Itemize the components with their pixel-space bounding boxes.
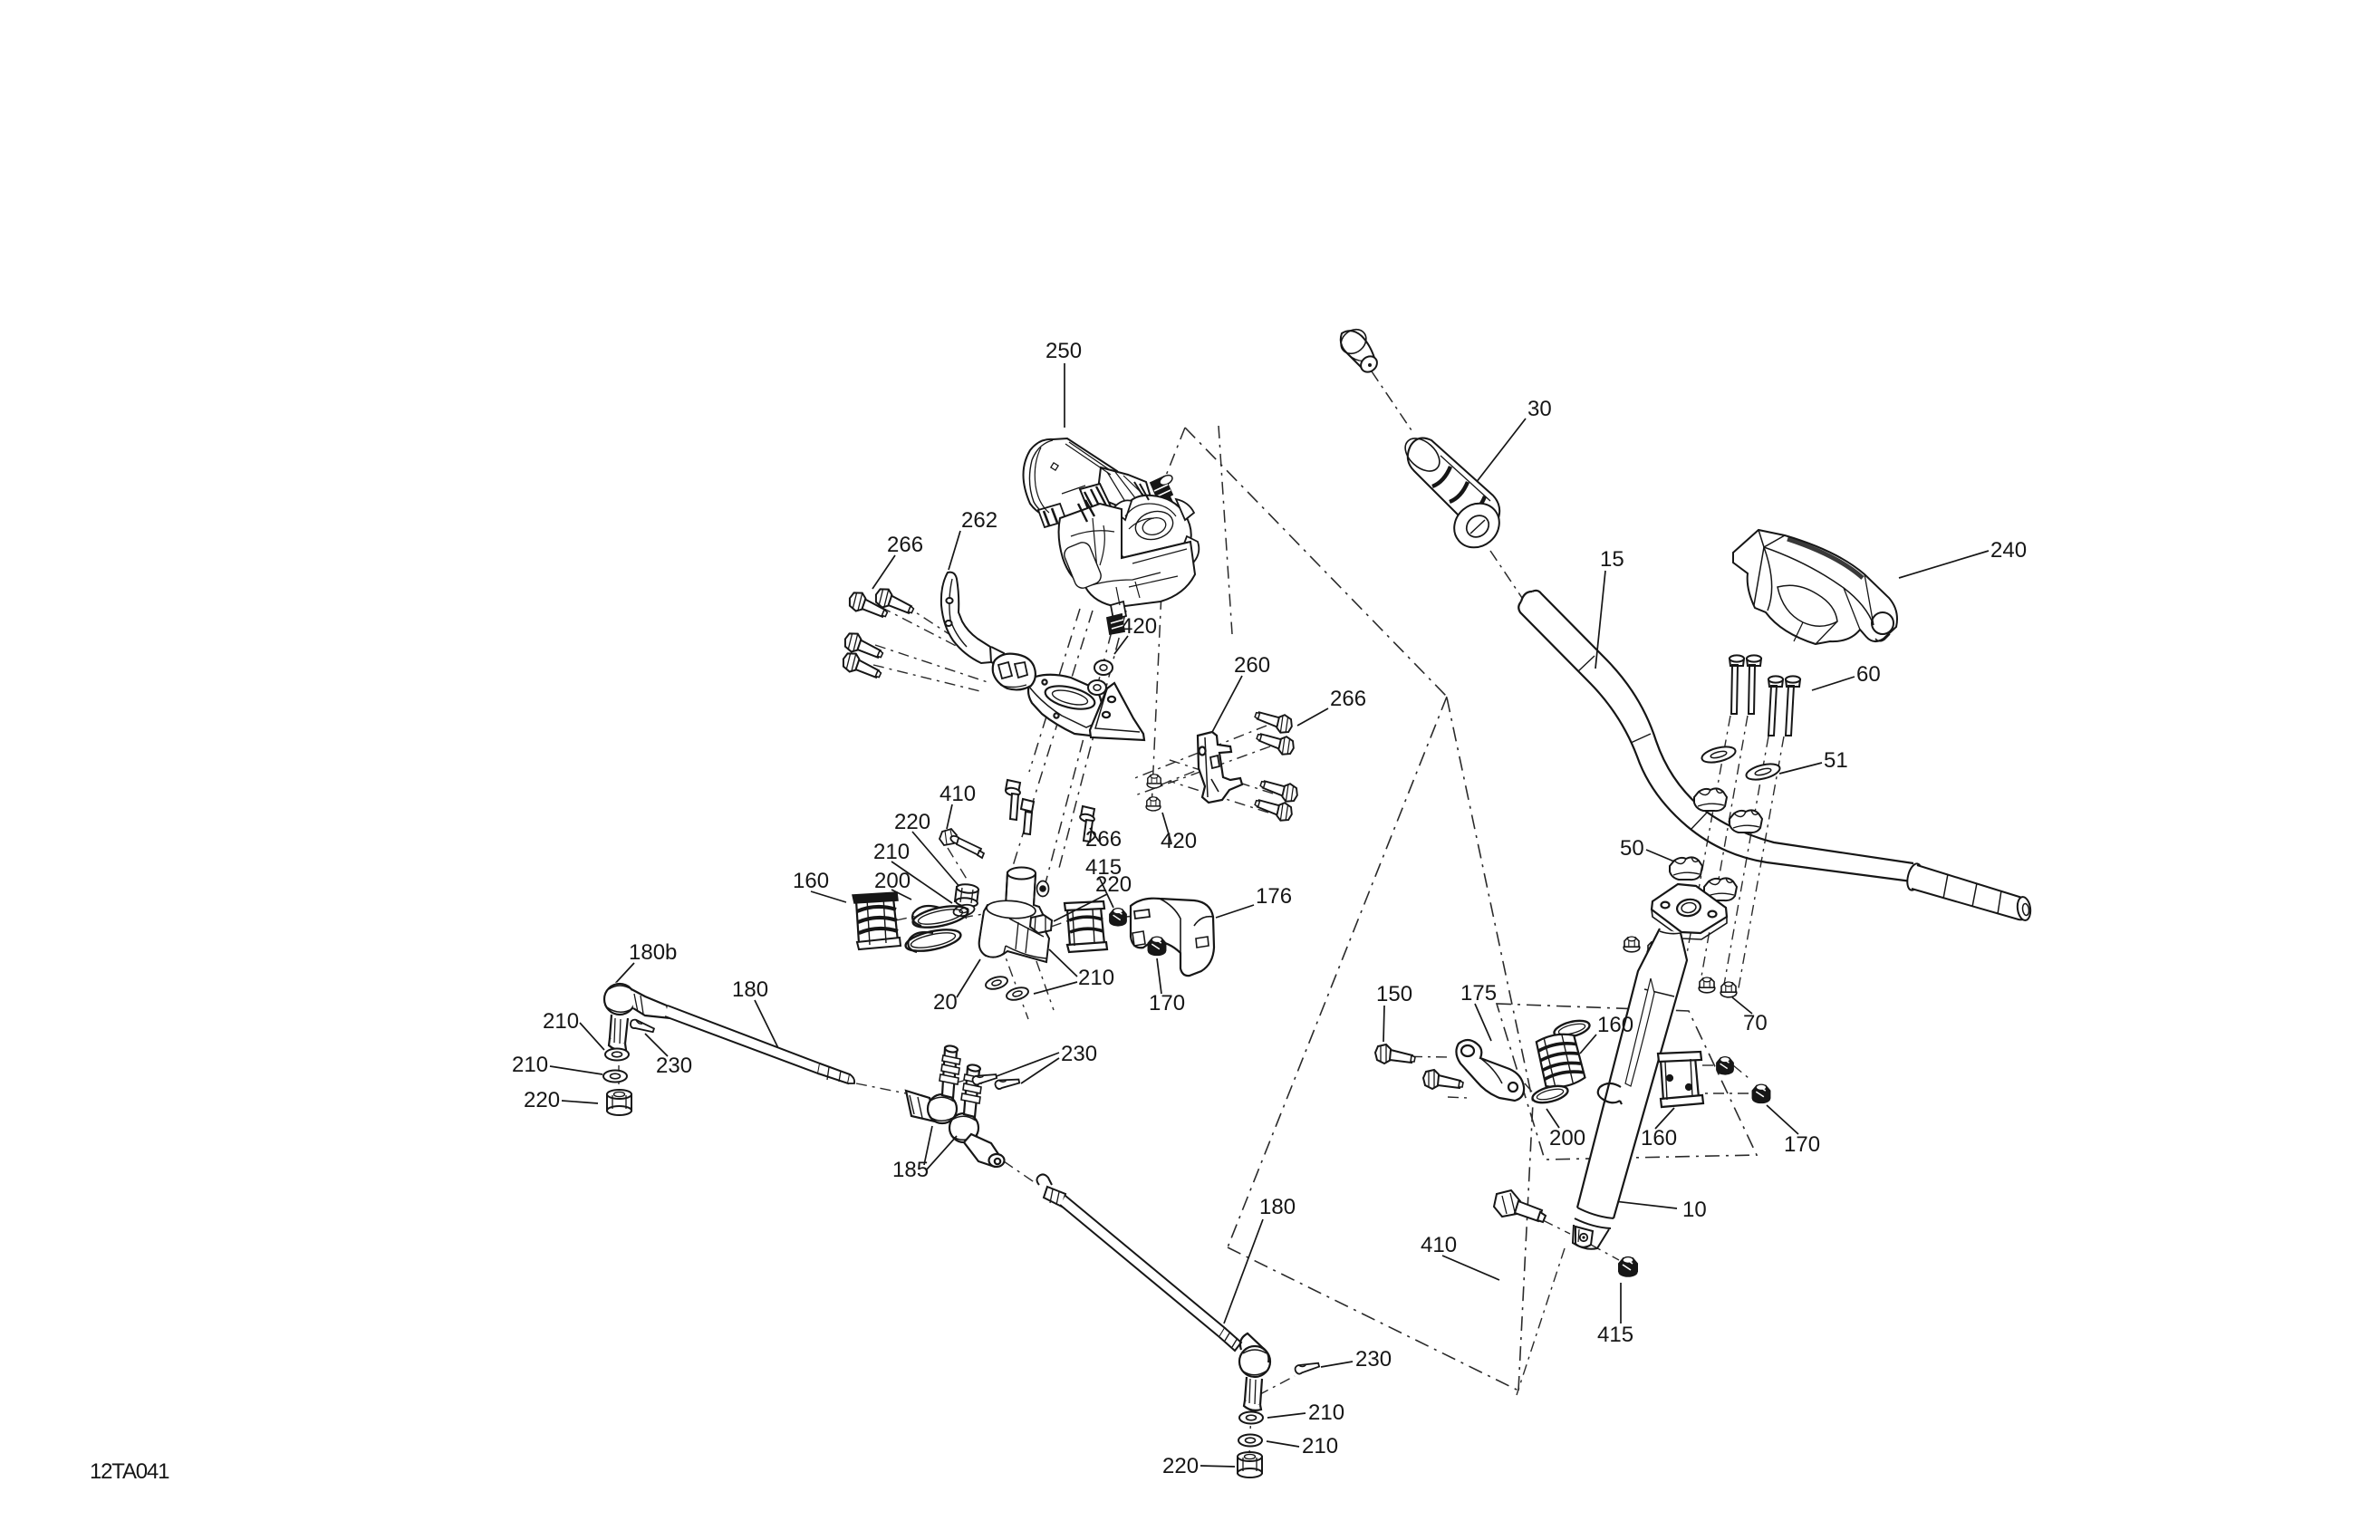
svg-text:20: 20 [933, 990, 958, 1015]
svg-text:262: 262 [961, 508, 997, 533]
svg-text:266: 266 [887, 533, 923, 557]
svg-text:210: 210 [512, 1053, 548, 1077]
svg-text:210: 210 [873, 840, 910, 864]
svg-text:160: 160 [1641, 1126, 1677, 1150]
svg-text:420: 420 [1121, 614, 1157, 639]
svg-text:160: 160 [793, 869, 829, 893]
svg-text:266: 266 [1085, 827, 1122, 852]
svg-text:50: 50 [1620, 836, 1644, 861]
svg-text:266: 266 [1330, 687, 1366, 711]
svg-text:260: 260 [1234, 653, 1270, 678]
svg-text:220: 220 [1162, 1454, 1199, 1478]
svg-text:210: 210 [543, 1009, 579, 1034]
svg-text:410: 410 [1421, 1233, 1457, 1257]
svg-text:175: 175 [1460, 981, 1497, 1006]
svg-text:200: 200 [1549, 1126, 1585, 1150]
svg-text:220: 220 [894, 810, 930, 834]
svg-text:60: 60 [1856, 662, 1881, 687]
svg-text:230: 230 [1061, 1042, 1097, 1066]
svg-text:12TA041: 12TA041 [90, 1459, 169, 1484]
svg-text:30: 30 [1527, 397, 1552, 421]
svg-text:415: 415 [1597, 1323, 1633, 1347]
svg-text:51: 51 [1824, 748, 1848, 773]
svg-text:180: 180 [732, 977, 768, 1002]
svg-text:10: 10 [1682, 1198, 1707, 1222]
svg-text:250: 250 [1045, 339, 1082, 363]
svg-text:185: 185 [892, 1158, 929, 1182]
svg-text:180: 180 [1259, 1195, 1296, 1219]
svg-text:240: 240 [1990, 538, 2027, 563]
svg-text:210: 210 [1302, 1434, 1338, 1458]
svg-text:160: 160 [1597, 1013, 1633, 1037]
svg-text:220: 220 [524, 1088, 560, 1112]
svg-text:210: 210 [1078, 966, 1114, 990]
svg-text:170: 170 [1149, 991, 1185, 1015]
svg-text:210: 210 [1308, 1400, 1344, 1425]
svg-text:410: 410 [939, 782, 976, 806]
svg-text:230: 230 [656, 1054, 692, 1078]
svg-text:420: 420 [1161, 829, 1197, 853]
svg-text:170: 170 [1784, 1132, 1820, 1157]
svg-text:70: 70 [1743, 1011, 1768, 1035]
svg-text:176: 176 [1256, 884, 1292, 909]
svg-text:15: 15 [1600, 547, 1624, 572]
svg-text:220: 220 [1095, 872, 1132, 897]
svg-text:150: 150 [1376, 982, 1412, 1006]
svg-text:180b: 180b [629, 940, 677, 965]
svg-text:230: 230 [1355, 1347, 1392, 1372]
